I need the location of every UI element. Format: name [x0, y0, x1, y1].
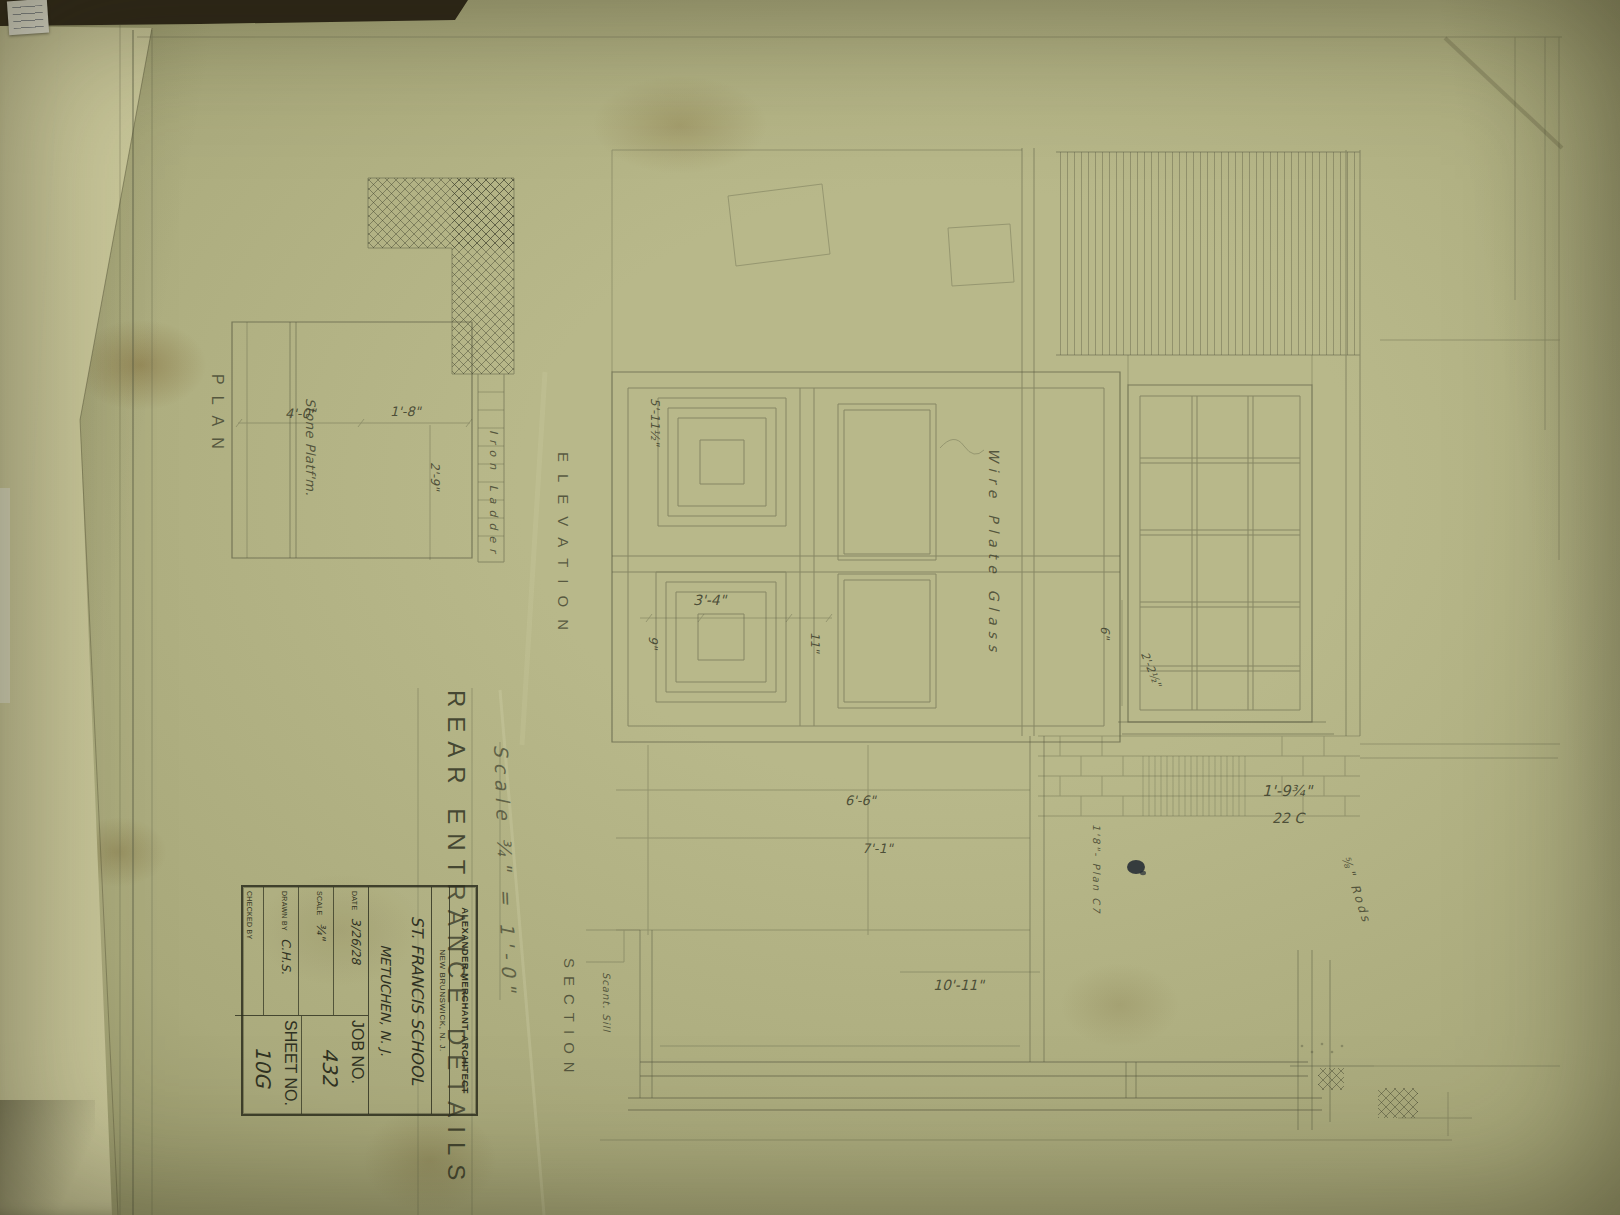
ink-blot [1127, 860, 1146, 875]
architect-name: ALEXANDER MERCHANT, ARCHITECT [449, 887, 476, 1114]
job-no-value: 432 [318, 1020, 342, 1114]
title-block-left-column: DATE 3/26/28 SCALE ¾" DRAWN BY C.H.S. CH… [235, 887, 368, 1016]
dim-door-panel: 3'-4" [693, 592, 726, 608]
plan-ref-note: 1'8"- Plan C7 [1091, 824, 1102, 915]
dim-platform-width: 4'-0" [285, 406, 316, 421]
view-label-plan: PLAN [208, 374, 226, 460]
checked-by-label: CHECKED BY [246, 891, 253, 940]
dim-left-stile: 9" [646, 636, 660, 649]
sheet-no-field: SHEET NO. 10G [235, 1016, 301, 1114]
iron-ladder-note: Iron Ladder [487, 430, 500, 559]
job-no-field: JOB NO. 432 [301, 1016, 368, 1114]
dim-section-width: 10'-11" [933, 977, 984, 993]
checked-by-field: CHECKED BY [229, 887, 263, 1015]
sheet-no-value: 10G [251, 1020, 275, 1114]
date-field: DATE 3/26/28 [333, 887, 368, 1015]
title-block: ALEXANDER MERCHANT, ARCHITECT NEW BRUNSW… [241, 885, 478, 1116]
scant-sill-note: Scant. Sill [601, 972, 612, 1032]
date-value: 3/26/28 [349, 918, 363, 964]
scale-value: ¾" [314, 923, 328, 940]
sheet-no-label: SHEET NO. [282, 1020, 299, 1106]
dim-platform-depth: 1'-8" [390, 404, 421, 419]
dim-landing-b: 7'-1" [862, 841, 893, 856]
scale-label: SCALE [316, 891, 323, 915]
date-label: DATE [351, 891, 358, 910]
drawn-by-label: DRAWN BY [281, 891, 288, 931]
wire-plate-glass-note: Wire Plate Glass [986, 448, 1002, 657]
view-label-section: SECTION [561, 958, 578, 1081]
dim-landing-a: 6'-6" [845, 793, 876, 808]
dim-window-head: 6" [1098, 626, 1112, 639]
dim-course-height: 1'-9¾" [1262, 782, 1312, 800]
dim-gauge: 22 C [1272, 810, 1304, 826]
scale-field: SCALE ¾" [298, 887, 333, 1015]
dim-door-height: 5'-11½" [648, 398, 662, 446]
dim-platform-side: 2'-9" [428, 462, 442, 490]
view-label-elevation: ELEVATION [555, 452, 572, 642]
title-block-grid: DATE 3/26/28 SCALE ¾" DRAWN BY C.H.S. CH… [235, 887, 368, 1114]
drawn-by-value: C.H.S. [279, 938, 293, 974]
job-no-label: JOB NO. [349, 1020, 366, 1084]
drawing-photo: REAR ENTRANCE DETAILS Scale ¾" = 1'-0" P… [0, 0, 1620, 1215]
project-name: ST. FRANCIS SCHOOL [394, 887, 431, 1114]
title-block-right-column: JOB NO. 432 SHEET NO. 10G [235, 1016, 368, 1114]
drawn-by-field: DRAWN BY C.H.S. [263, 887, 298, 1015]
project-city: METUCHEN, N. J. [368, 887, 394, 1114]
architect-city: NEW BRUNSWICK, N. J. [431, 887, 449, 1114]
dim-right-stile: 11" [808, 632, 822, 653]
